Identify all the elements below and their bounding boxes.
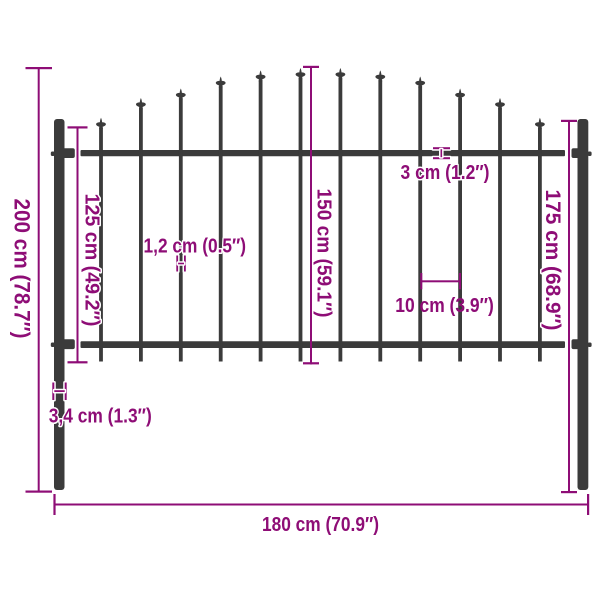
svg-text:3,4 cm (1.3″): 3,4 cm (1.3″) [49,406,152,428]
svg-text:1,2 cm (0.5″): 1,2 cm (0.5″) [144,236,247,258]
svg-text:200 cm (78.7″): 200 cm (78.7″) [10,199,35,339]
svg-text:10 cm (3.9″): 10 cm (3.9″) [395,295,494,317]
svg-text:150 cm (59.1″): 150 cm (59.1″) [313,189,335,318]
svg-text:180 cm (70.9″): 180 cm (70.9″) [262,514,379,536]
svg-text:125 cm (49.2″): 125 cm (49.2″) [81,194,104,327]
svg-text:175 cm (68.9″): 175 cm (68.9″) [541,190,565,331]
svg-text:3 cm (1.2″): 3 cm (1.2″) [401,162,490,184]
